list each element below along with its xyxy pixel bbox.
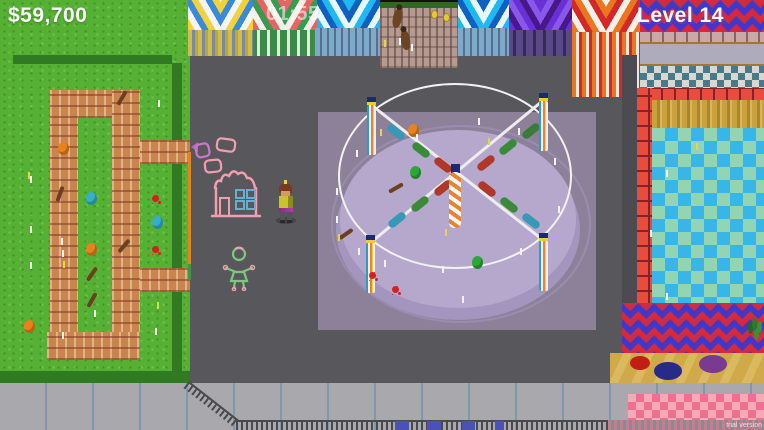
plant-sprite — [752, 318, 757, 330]
bunting-row — [640, 32, 764, 42]
bench[interactable] — [395, 421, 409, 430]
maze-path[interactable] — [112, 90, 140, 335]
tent-base-purple — [509, 30, 572, 56]
railing — [236, 420, 616, 430]
flower-blob-purple — [699, 355, 727, 373]
tent-base-green — [253, 30, 317, 56]
avatar-shadow — [276, 217, 296, 224]
pool-tile-wall — [640, 66, 764, 88]
tent-roof-blue-right — [458, 0, 509, 28]
level-display: Level 14 — [637, 4, 724, 28]
avatar-shirt — [279, 196, 293, 208]
avatar-shoe — [287, 220, 292, 223]
avatar-shoe — [280, 220, 285, 223]
avatar-leg — [287, 212, 292, 220]
carousel-pole — [367, 105, 376, 155]
game-viewport: $59,700 01:55 Level 14 trial version — [0, 0, 764, 430]
maze-path[interactable] — [140, 268, 190, 292]
hedge-border-right — [172, 63, 182, 140]
carousel-pole-cap — [367, 97, 376, 105]
bench[interactable] — [462, 421, 475, 430]
hedge-border-bottom — [0, 371, 190, 383]
flower-blob-red — [630, 356, 650, 370]
maze-path[interactable] — [140, 140, 190, 164]
carousel-pole-cap — [539, 93, 548, 101]
chalk-house-drawing — [210, 158, 262, 222]
maze-path[interactable] — [47, 332, 140, 360]
watermark: trial version — [726, 422, 762, 429]
bench[interactable] — [495, 421, 504, 430]
pool-deck — [652, 100, 764, 128]
avatar-leg — [280, 212, 285, 220]
entrance-path[interactable] — [380, 8, 458, 68]
hedge-border-top — [13, 55, 172, 64]
tent-roof-orange — [572, 0, 640, 32]
flowerbed-band — [610, 353, 764, 385]
chalk-figure-drawing — [222, 245, 256, 291]
carousel-center-pole — [449, 172, 461, 228]
carousel-pole-cap — [539, 233, 548, 241]
flower-blob-navy — [654, 362, 682, 380]
player-avatar[interactable] — [276, 180, 296, 224]
tent-roof-purple — [509, 0, 572, 30]
maze-path[interactable] — [50, 90, 78, 335]
entrance-fence-left — [315, 28, 381, 56]
awning-zigzag — [622, 303, 764, 355]
hedge-border-right — [172, 164, 182, 268]
timer-display: 01:55 — [266, 3, 320, 26]
carousel-pole — [539, 241, 548, 291]
hedge-border-right — [172, 292, 182, 371]
carousel-pole-cap — [366, 235, 375, 243]
money-display: $59,700 — [8, 4, 87, 28]
carousel-pole — [366, 243, 375, 293]
bench[interactable] — [427, 421, 441, 430]
tent-roof-blue-left — [317, 0, 381, 28]
queue-line-green — [188, 264, 191, 280]
tent-roof-yellow — [188, 0, 253, 30]
swimming-pool[interactable] — [652, 128, 764, 305]
wall-shadow — [622, 55, 637, 303]
queue-line-orange — [188, 152, 191, 264]
pink-walkway — [628, 394, 764, 420]
pool-brick-border — [637, 88, 652, 305]
pool-wall — [640, 42, 764, 66]
tent-base-yellow — [188, 30, 253, 56]
carousel-pole — [539, 101, 548, 151]
entrance-fence-right — [458, 28, 509, 56]
garden-area[interactable] — [0, 0, 190, 383]
